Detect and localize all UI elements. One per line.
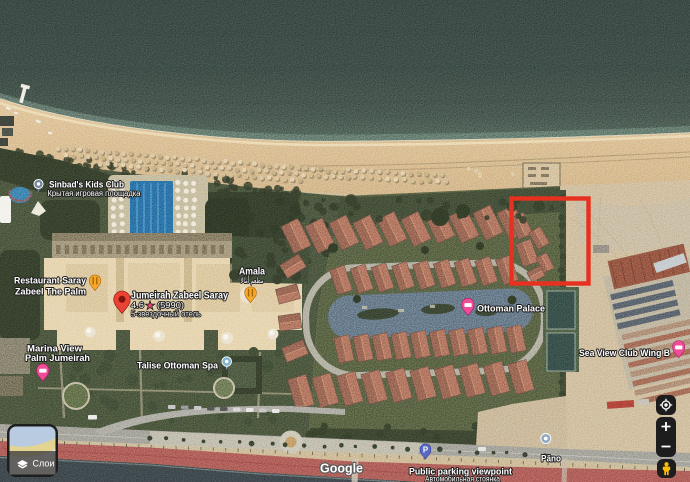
svg-text:Restaurant Saray: Restaurant Saray xyxy=(14,276,87,287)
svg-text:(5990): (5990) xyxy=(157,300,184,310)
svg-text:Sea View Club Wing B: Sea View Club Wing B xyxy=(579,348,670,359)
svg-text:P: P xyxy=(423,446,428,455)
svg-text:Palm Jumeirah: Palm Jumeirah xyxy=(25,353,90,364)
svg-text:Talise Ottoman Spa: Talise Ottoman Spa xyxy=(137,361,219,372)
svg-text:Слои: Слои xyxy=(33,459,55,469)
svg-text:Pāno: Pāno xyxy=(541,454,561,465)
svg-text:Ottoman Palace: Ottoman Palace xyxy=(477,304,545,315)
svg-text:5-звездочный отель: 5-звездочный отель xyxy=(131,310,201,319)
svg-text:مطعم أمالا: مطعم أمالا xyxy=(241,274,264,285)
svg-text:Google: Google xyxy=(320,461,363,476)
svg-text:Автомобильная стоянка: Автомобильная стоянка xyxy=(425,474,500,482)
svg-text:Крытая игровая площадка: Крытая игровая площадка xyxy=(48,189,142,198)
svg-text:Zabeel The Palm: Zabeel The Palm xyxy=(15,287,86,298)
svg-text:4.6: 4.6 xyxy=(131,300,144,310)
